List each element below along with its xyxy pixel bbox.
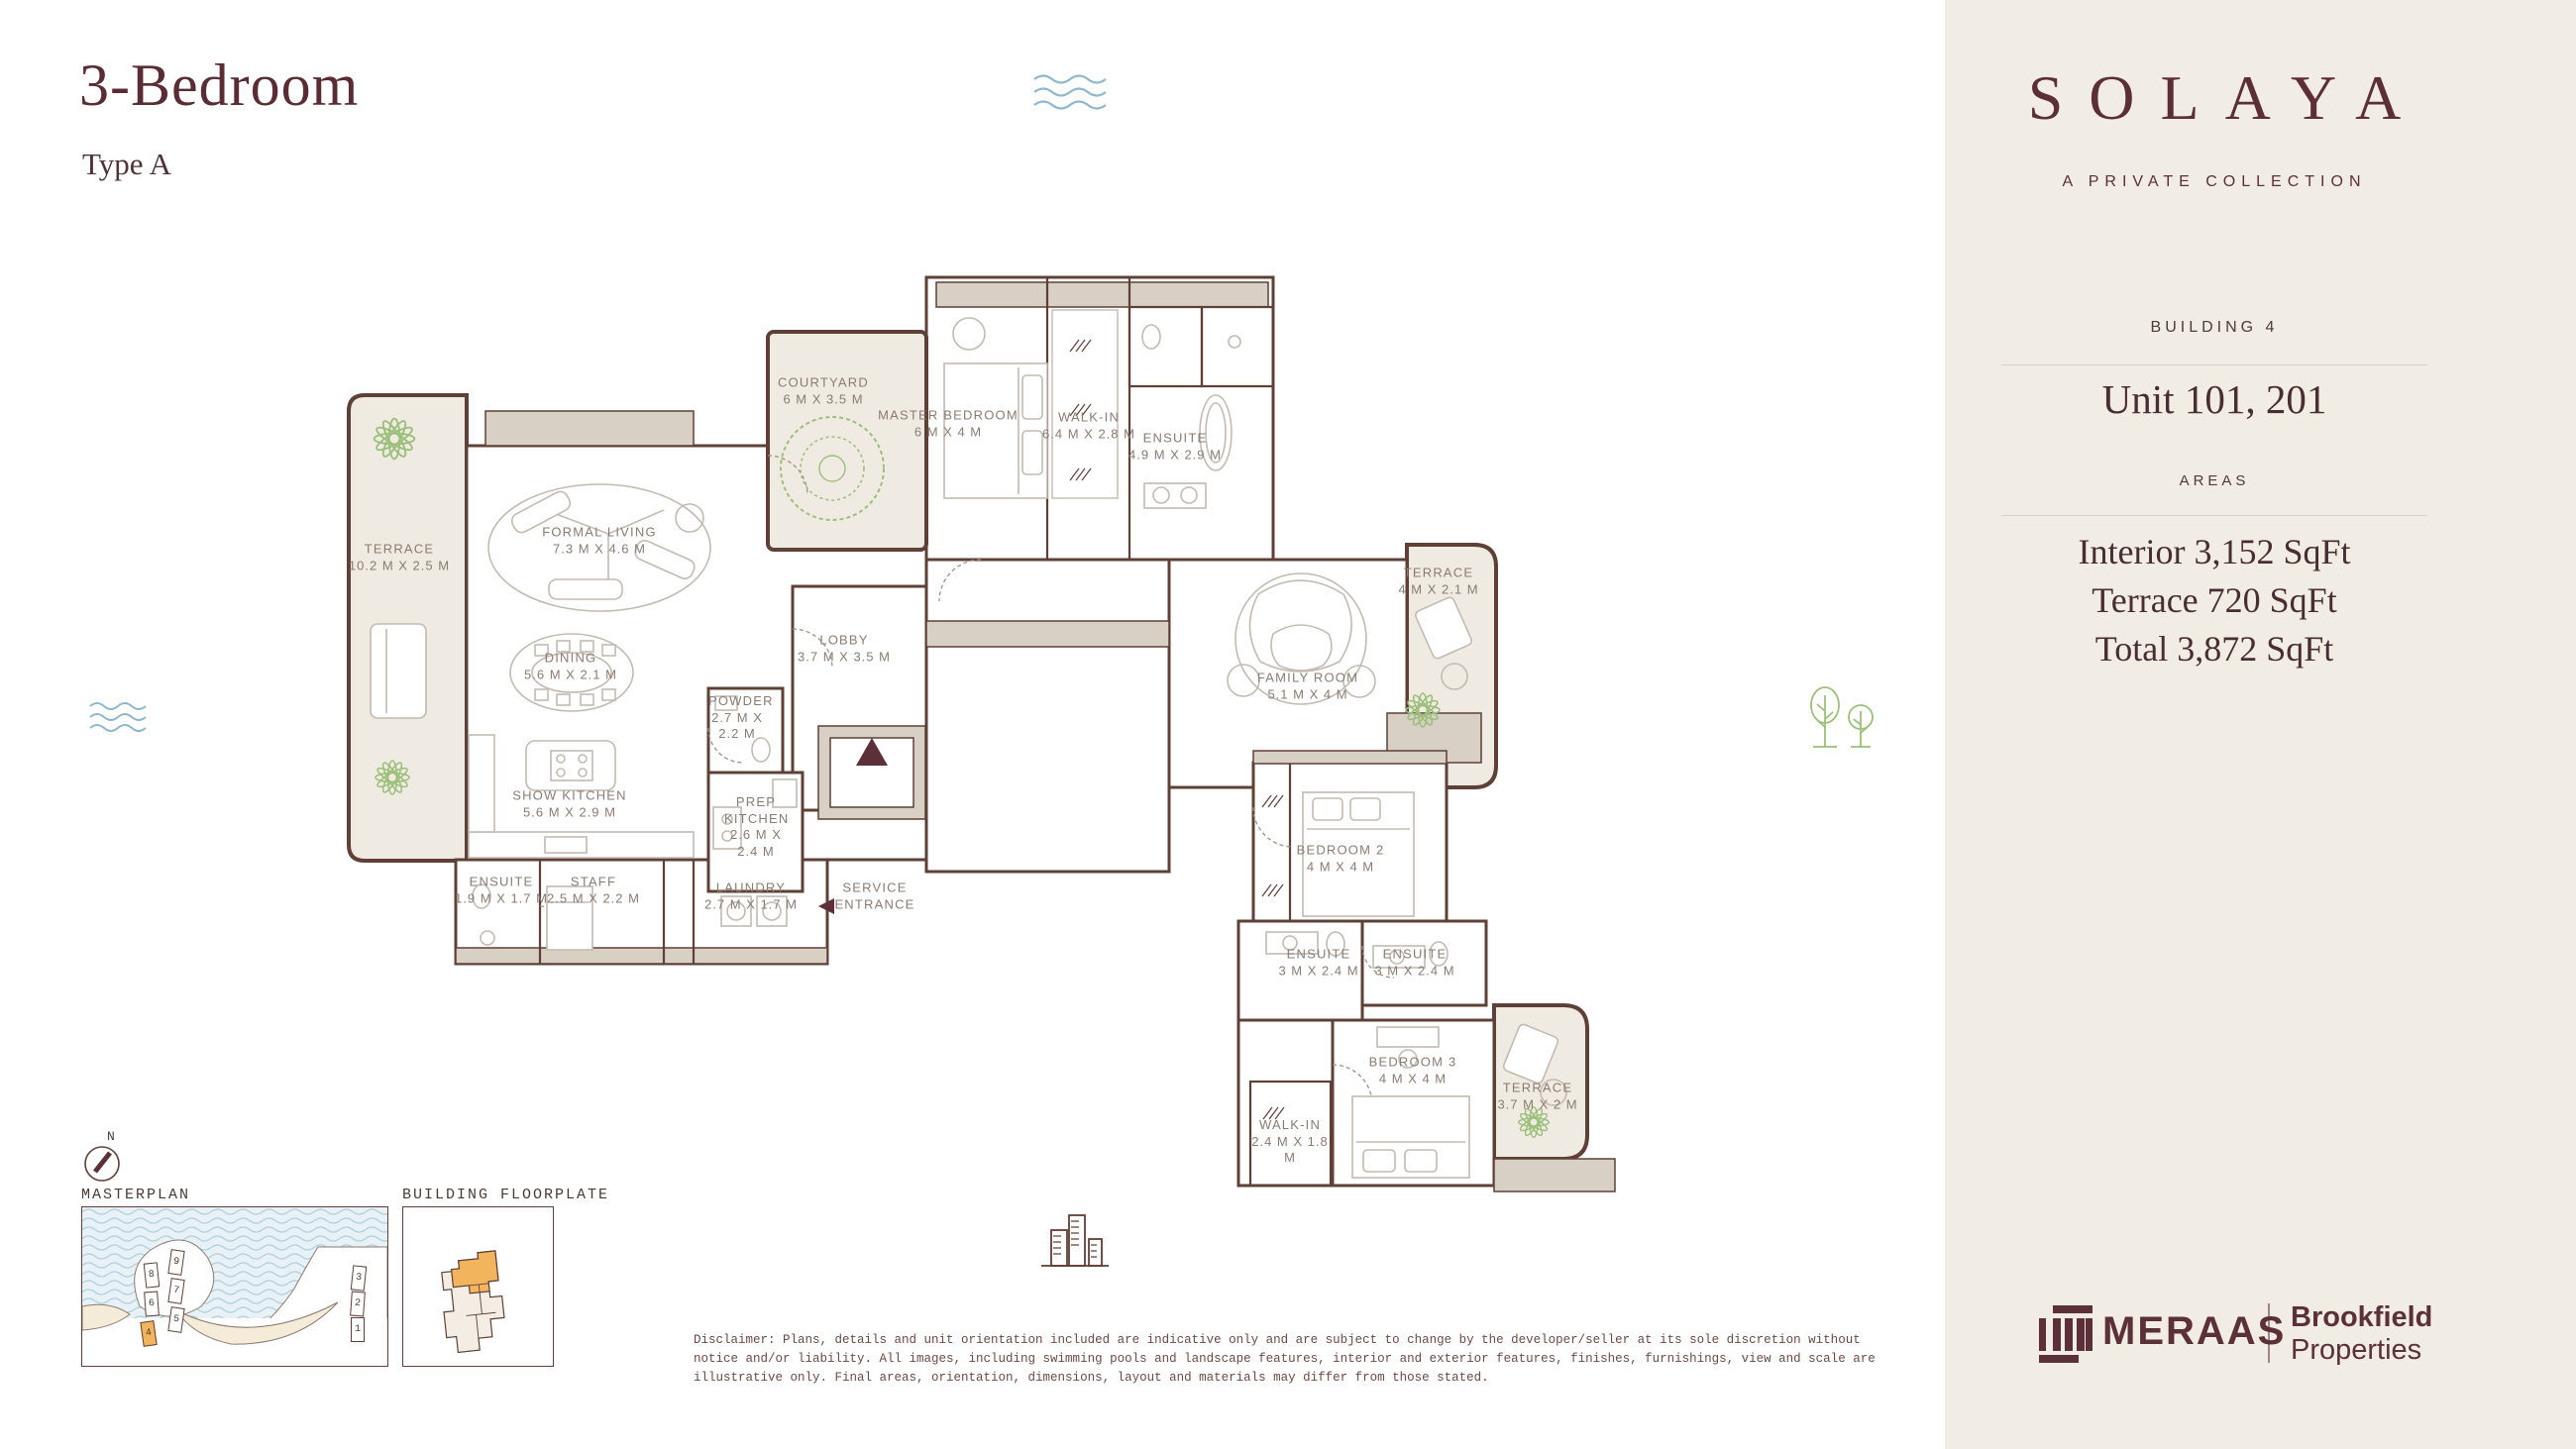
area-interior: Interior 3,152 SqFt (2001, 528, 2427, 576)
logo-divider (2268, 1303, 2270, 1363)
page-title: 3-Bedroom (79, 52, 359, 120)
building-label: BUILDING 4 (2001, 319, 2427, 337)
masterplan-thumbnail: 987654321 (81, 1206, 388, 1367)
city-buildings-icon (1038, 1206, 1112, 1274)
page-subtitle: Type A (82, 147, 171, 182)
brand-logo: SOLAYA (2001, 61, 2427, 135)
water-waves-icon (1030, 71, 1122, 115)
masterplan-building-1: 1 (351, 1317, 365, 1342)
divider (2001, 515, 2427, 516)
floor-plan: TERRACE10.2 M X 2.5 MFORMAL LIVING7.3 M … (337, 253, 1625, 1203)
masterplan-building-6: 6 (144, 1292, 160, 1317)
floorplate-shape (403, 1207, 553, 1366)
disclaimer-text: Disclaimer: Plans, details and unit orie… (694, 1331, 1897, 1387)
masterplan-building-2: 2 (350, 1292, 366, 1317)
brookfield-wordmark-line1: Brookfield (2291, 1301, 2432, 1334)
developer-logos: MERAAS Brookfield Properties (2039, 1301, 2455, 1371)
brand-tagline: A PRIVATE COLLECTION (2001, 173, 2427, 191)
compass-icon (79, 1137, 127, 1192)
masterplan-building-8: 8 (144, 1262, 161, 1288)
area-terrace: Terrace 720 SqFt (2001, 576, 2427, 625)
brookfield-wordmark-line2: Properties (2291, 1334, 2421, 1367)
masterplan-building-3: 3 (351, 1265, 368, 1291)
floorplate-thumbnail (402, 1206, 554, 1367)
sidebar: SOLAYA A PRIVATE COLLECTION BUILDING 4 U… (1945, 0, 2576, 1449)
floorplate-label: BUILDING FLOORPLATE (402, 1187, 609, 1203)
brochure-page: 3-Bedroom Type A (0, 0, 2576, 1449)
divider (2001, 364, 2427, 365)
trees-icon (1805, 681, 1890, 759)
floor-plan-drawing (337, 253, 1625, 1203)
unit-number: Unit 101, 201 (2001, 375, 2427, 423)
meraas-wordmark: MERAAS (2102, 1309, 2286, 1354)
meraas-logo-icon (2039, 1305, 2096, 1365)
masterplan-label: MASTERPLAN (81, 1187, 190, 1203)
areas-label: AREAS (2001, 472, 2427, 489)
areas-values: Interior 3,152 SqFt Terrace 720 SqFt Tot… (2001, 528, 2427, 673)
area-total: Total 3,872 SqFt (2001, 625, 2427, 673)
compass: N (79, 1129, 139, 1190)
masterplan-map (82, 1207, 387, 1366)
water-waves-icon (87, 699, 155, 737)
